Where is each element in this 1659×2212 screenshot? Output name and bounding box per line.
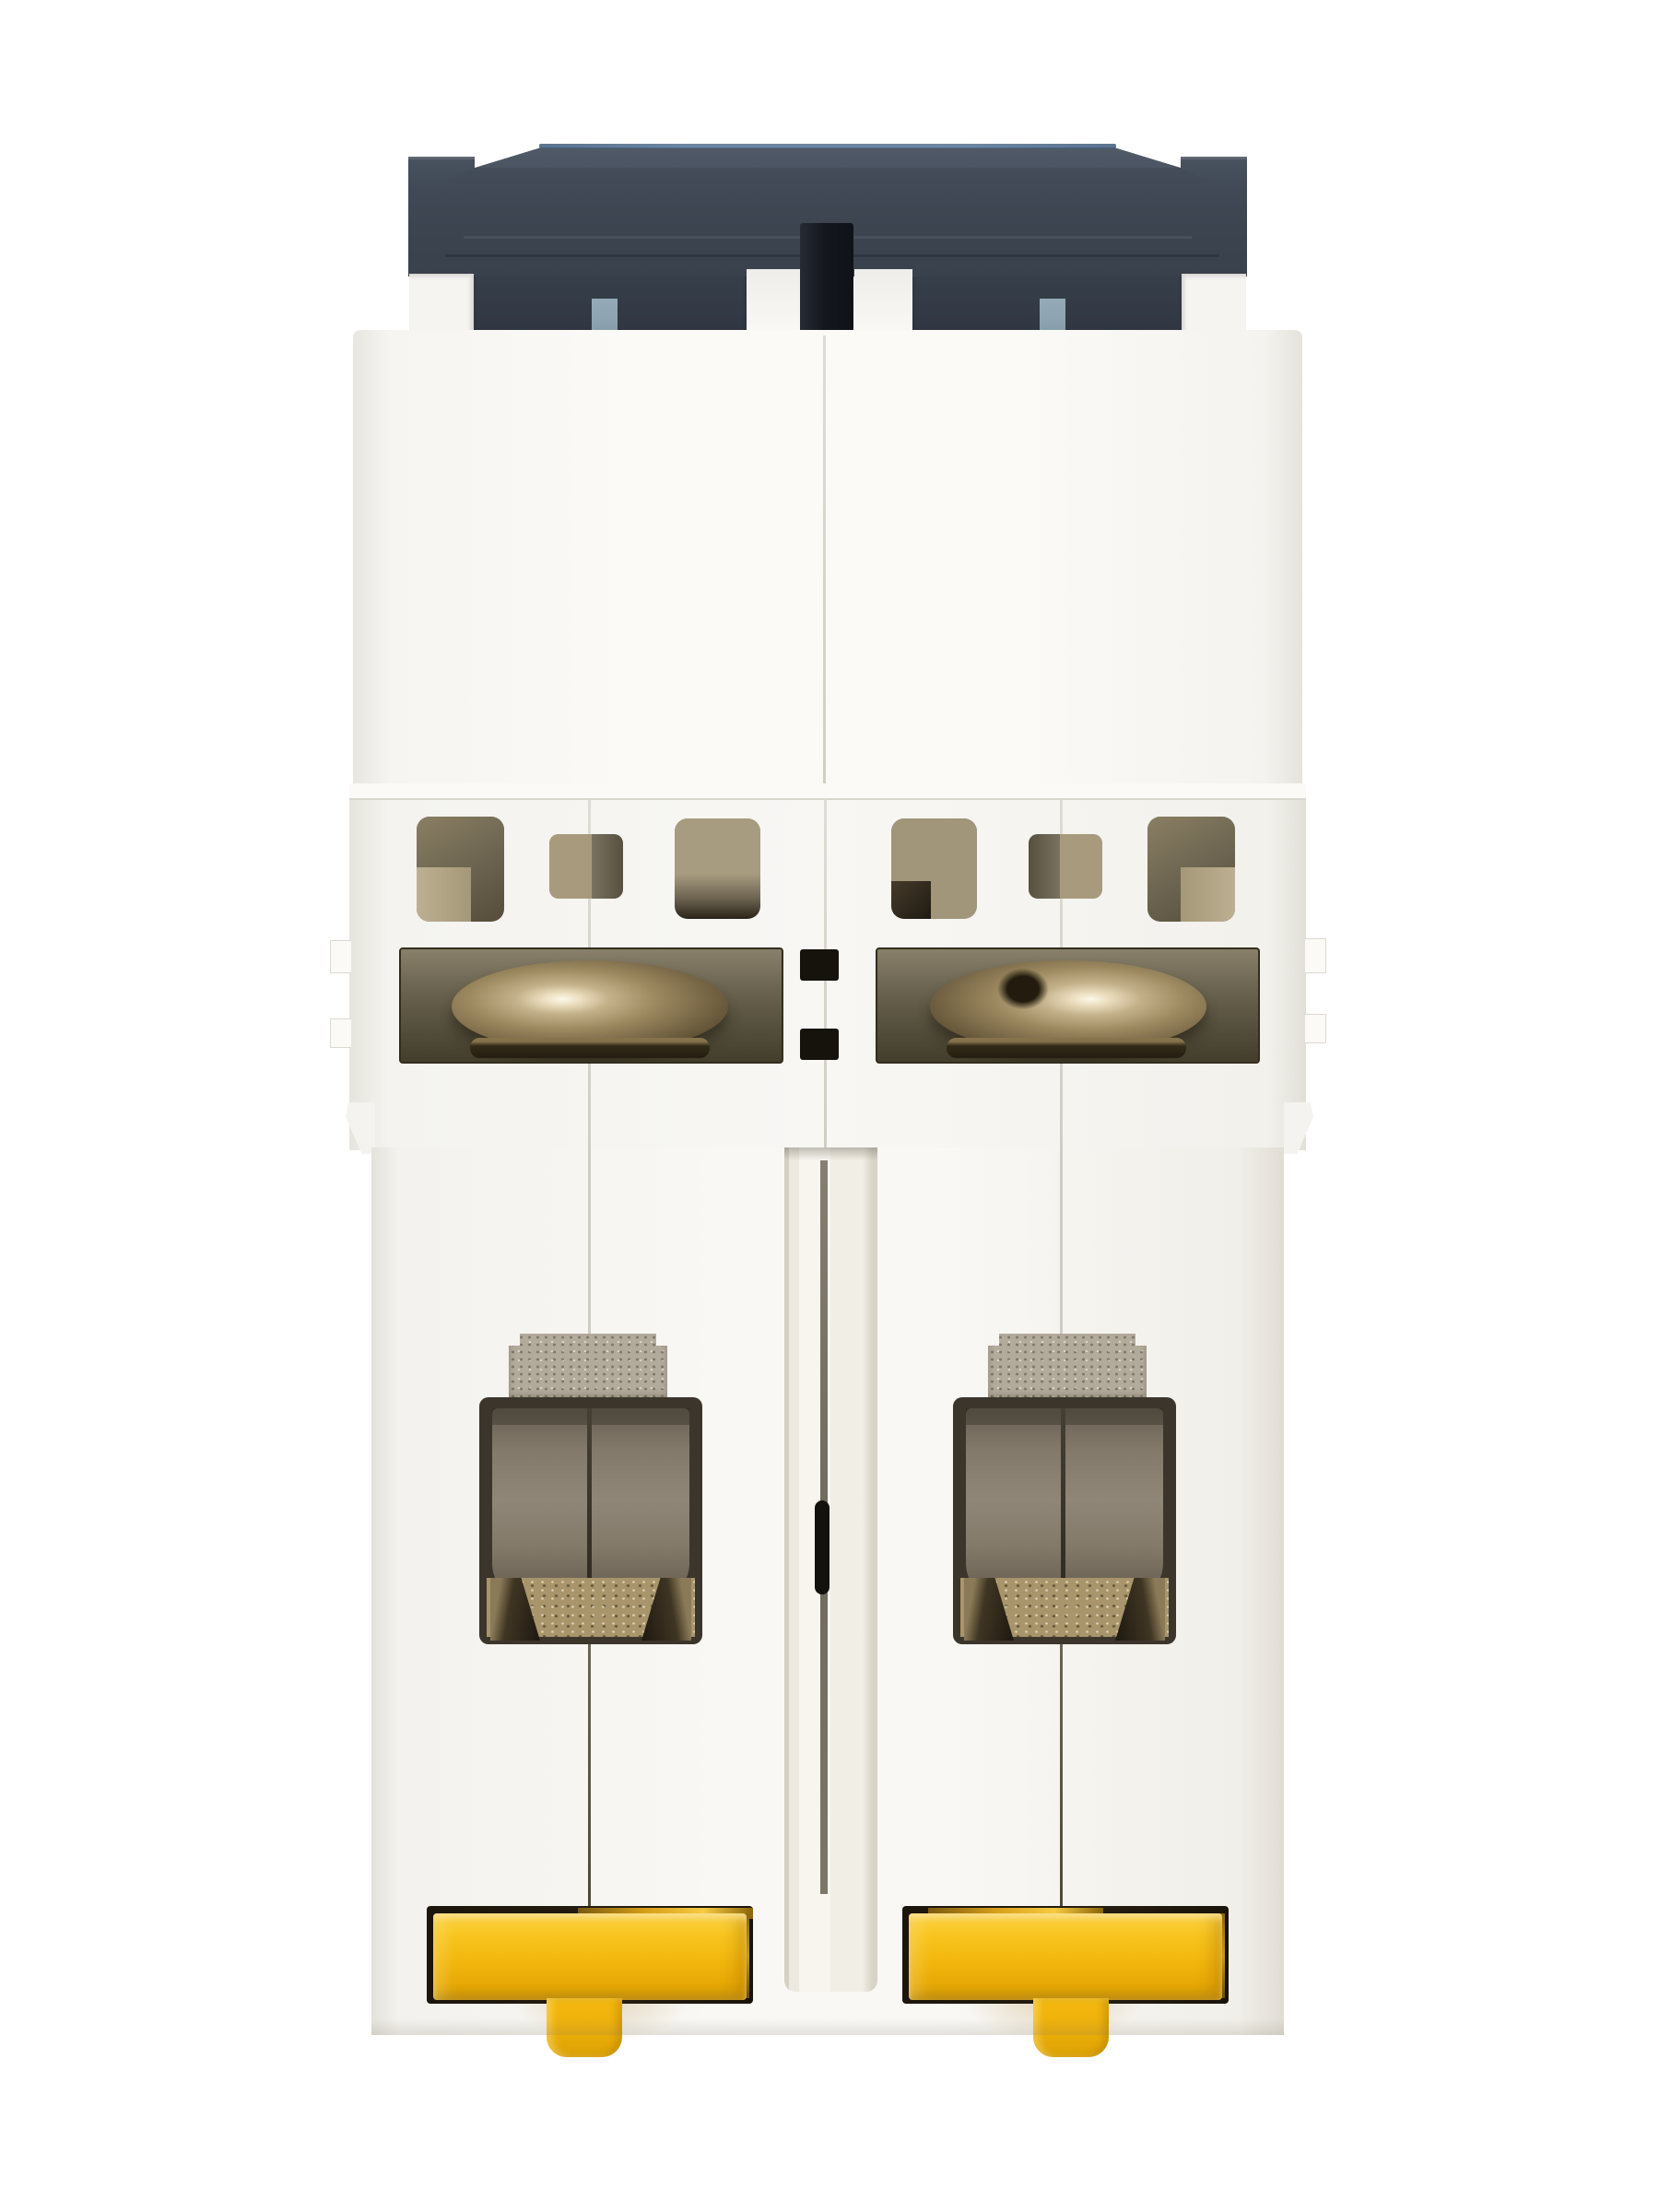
module-seam-right-lower <box>1060 1644 1063 1906</box>
vent-opening-2 <box>549 834 623 899</box>
vent-opening-3 <box>675 818 760 919</box>
center-channel-lip <box>784 1147 877 1160</box>
din-rail-clip-left <box>433 1913 747 2000</box>
edge-tab-left-2 <box>330 1018 351 1048</box>
vent-metal-plate <box>1029 834 1060 899</box>
vent-shelf <box>1181 867 1235 922</box>
vent-opening-1 <box>417 817 504 922</box>
terminal-screw-recess-right <box>876 947 1260 1064</box>
bottom-edge-shadow <box>371 2018 1284 2035</box>
terminal-screw-washer-right <box>947 1038 1186 1058</box>
vent-opening-4 <box>891 818 977 919</box>
phillips-slot <box>994 966 1052 1012</box>
product-photo-breaker-rear-view <box>0 0 1659 2212</box>
vent-interior <box>549 834 592 899</box>
din-rail-clip-right <box>909 1913 1222 2000</box>
center-channel <box>784 1147 877 1992</box>
housing-upper <box>353 330 1302 785</box>
terminal-metal-tab-right <box>988 1334 1147 1400</box>
vent-interior <box>675 818 760 919</box>
terminal-metal-tab-left <box>509 1334 667 1400</box>
module-seam-left-upper <box>588 1147 591 1334</box>
housing-shoulder-right <box>1182 274 1246 335</box>
terminal-screw-recess-left <box>399 947 783 1064</box>
clamp-divider <box>587 1408 592 1602</box>
module-seam-right-upper <box>1060 1147 1063 1334</box>
lower-shoulder-right <box>1284 1102 1313 1154</box>
vent-shadow-corner <box>891 881 931 919</box>
vent-metal-plate <box>592 834 623 899</box>
toggle-gap-block-right <box>854 269 912 335</box>
edge-tab-left-1 <box>330 940 351 973</box>
center-notch-upper <box>800 949 839 981</box>
clamp-divider <box>1061 1408 1065 1602</box>
vent-opening-6 <box>1147 817 1235 922</box>
mid-section-ledge <box>349 783 1306 800</box>
wire-clamp-left <box>492 1408 689 1602</box>
module-seam-left-lower <box>588 1644 591 1906</box>
toggle-gap-block-left <box>747 269 802 335</box>
terminal-screw-washer-left <box>470 1038 710 1058</box>
edge-tab-right-2 <box>1305 1014 1326 1043</box>
housing-shoulder-left <box>409 274 474 335</box>
housing-mid-section <box>349 783 1306 1150</box>
vent-opening-5 <box>1029 834 1102 899</box>
vent-shelf <box>417 867 471 922</box>
wire-clamp-cavity-right <box>953 1397 1176 1644</box>
edge-tab-right-1 <box>1305 938 1326 973</box>
toggle-cap-rim-highlight <box>539 144 1116 148</box>
toggle-tie-pin <box>800 223 853 335</box>
wire-clamp-cavity-left <box>479 1397 702 1644</box>
wire-clamp-right <box>966 1408 1163 1602</box>
housing-center-seam <box>823 335 826 785</box>
center-notch-lower <box>800 1029 839 1060</box>
housing-lower <box>371 1147 1284 2035</box>
vent-interior <box>1060 834 1102 899</box>
center-channel-pin-thick <box>815 1500 829 1594</box>
